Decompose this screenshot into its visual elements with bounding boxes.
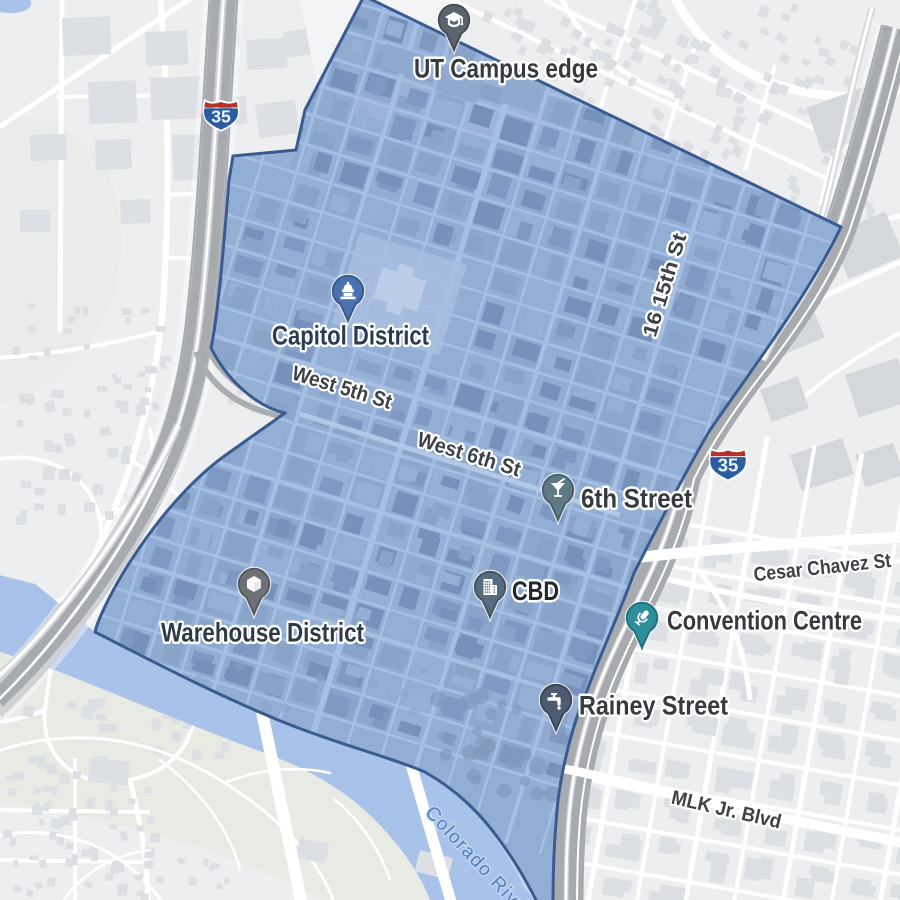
svg-text:Rainey Street: Rainey Street [579, 691, 728, 721]
svg-text:35: 35 [211, 106, 231, 126]
svg-text:Convention Centre: Convention Centre [667, 606, 862, 636]
svg-text:UT Campus edge: UT Campus edge [414, 54, 598, 84]
svg-text:35: 35 [718, 455, 739, 476]
svg-text:6th Street: 6th Street [581, 484, 692, 514]
svg-text:CBD: CBD [512, 576, 559, 606]
svg-text:Warehouse District: Warehouse District [161, 618, 364, 648]
svg-text:Capitol District: Capitol District [272, 321, 429, 351]
